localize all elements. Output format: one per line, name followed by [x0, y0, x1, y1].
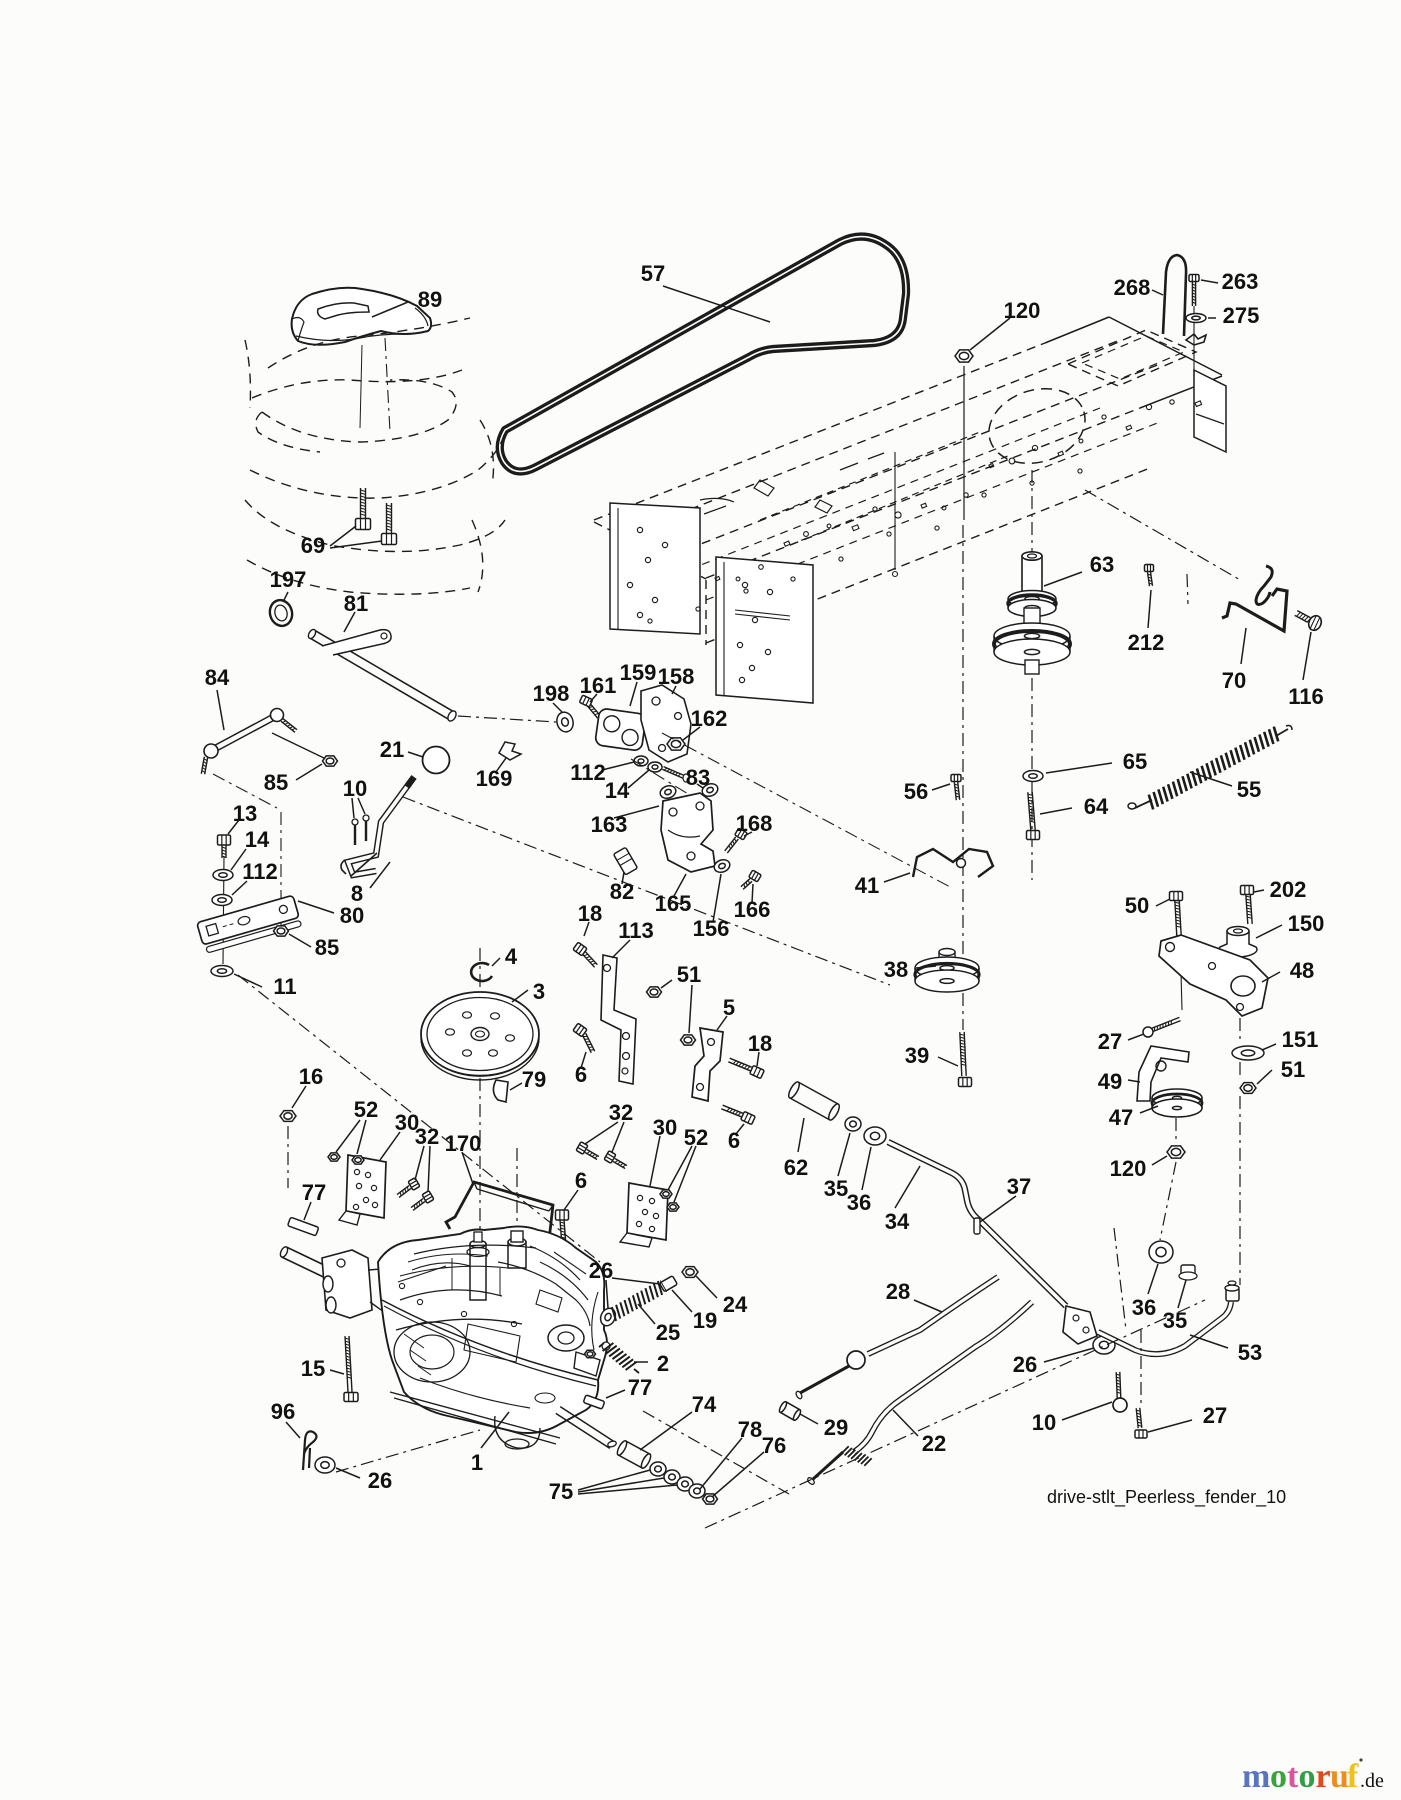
svg-text:96: 96	[271, 1399, 295, 1424]
svg-text:268: 268	[1114, 275, 1151, 300]
svg-text:120: 120	[1004, 298, 1041, 323]
svg-text:26: 26	[589, 1258, 613, 1283]
svg-text:t: t	[1287, 1758, 1299, 1795]
svg-text:169: 169	[476, 766, 513, 791]
svg-text:drive-stlt_Peerless_fender_10: drive-stlt_Peerless_fender_10	[1047, 1487, 1286, 1508]
svg-text:116: 116	[1288, 684, 1324, 709]
svg-text:48: 48	[1290, 958, 1314, 983]
svg-text:161: 161	[580, 673, 617, 698]
svg-text:53: 53	[1238, 1340, 1262, 1365]
svg-text:112: 112	[242, 859, 278, 884]
svg-text:163: 163	[591, 812, 628, 837]
svg-text:r: r	[1316, 1758, 1331, 1795]
svg-text:120: 120	[1110, 1156, 1147, 1181]
svg-text:263: 263	[1222, 269, 1259, 294]
svg-text:5: 5	[723, 995, 735, 1020]
svg-text:11: 11	[273, 974, 296, 999]
svg-text:4: 4	[505, 944, 518, 969]
svg-text:49: 49	[1098, 1069, 1122, 1094]
svg-text:29: 29	[824, 1415, 848, 1440]
svg-text:51: 51	[677, 962, 701, 987]
svg-text:37: 37	[1007, 1174, 1031, 1199]
svg-text:62: 62	[784, 1155, 808, 1180]
svg-text:26: 26	[368, 1468, 392, 1493]
svg-text:3: 3	[533, 979, 545, 1004]
svg-text:158: 158	[658, 664, 695, 689]
svg-text:151: 151	[1282, 1027, 1319, 1052]
svg-text:10: 10	[1032, 1410, 1056, 1435]
svg-text:10: 10	[343, 776, 367, 801]
svg-text:18: 18	[578, 901, 602, 926]
svg-text:25: 25	[656, 1320, 680, 1345]
svg-text:36: 36	[1132, 1295, 1156, 1320]
svg-text:165: 165	[655, 891, 692, 916]
svg-text:30: 30	[653, 1115, 677, 1140]
svg-text:22: 22	[922, 1431, 946, 1456]
svg-text:52: 52	[684, 1125, 708, 1150]
svg-text:35: 35	[1163, 1308, 1187, 1333]
svg-text:64: 64	[1084, 794, 1109, 819]
svg-text:o: o	[1270, 1758, 1287, 1795]
svg-text:47: 47	[1109, 1105, 1133, 1130]
svg-text:21: 21	[380, 737, 404, 762]
svg-text:6: 6	[728, 1128, 740, 1153]
svg-text:168: 168	[736, 811, 773, 836]
svg-text:162: 162	[691, 706, 728, 731]
svg-text:112: 112	[570, 760, 606, 785]
svg-text:69: 69	[301, 533, 325, 558]
svg-text:159: 159	[620, 660, 657, 685]
svg-text:89: 89	[418, 287, 442, 312]
svg-text:52: 52	[354, 1097, 378, 1122]
svg-text:14: 14	[245, 827, 270, 852]
svg-text:50: 50	[1125, 893, 1149, 918]
svg-text:32: 32	[415, 1124, 439, 1149]
svg-text:1: 1	[471, 1450, 483, 1475]
svg-text:19: 19	[693, 1308, 717, 1333]
svg-text:65: 65	[1123, 749, 1147, 774]
svg-text:85: 85	[315, 935, 339, 960]
svg-text:38: 38	[884, 957, 908, 982]
svg-text:78: 78	[738, 1417, 762, 1442]
svg-text:197: 197	[270, 567, 307, 592]
svg-text:6: 6	[575, 1062, 587, 1087]
svg-text:f: f	[1347, 1758, 1359, 1795]
svg-text:74: 74	[692, 1392, 717, 1417]
svg-text:55: 55	[1237, 777, 1261, 802]
svg-text:150: 150	[1288, 911, 1325, 936]
svg-text:202: 202	[1270, 877, 1307, 902]
svg-text:27: 27	[1203, 1403, 1227, 1428]
svg-text:16: 16	[299, 1064, 323, 1089]
svg-text:57: 57	[641, 261, 665, 286]
svg-text:75: 75	[549, 1479, 573, 1504]
svg-text:166: 166	[734, 897, 771, 922]
svg-text:84: 84	[205, 665, 230, 690]
svg-text:170: 170	[445, 1131, 482, 1156]
svg-text:41: 41	[855, 873, 879, 898]
svg-text:80: 80	[340, 903, 364, 928]
svg-text:2: 2	[657, 1351, 669, 1376]
svg-text:27: 27	[1098, 1029, 1122, 1054]
svg-text:77: 77	[302, 1180, 326, 1205]
svg-text:15: 15	[301, 1356, 325, 1381]
svg-text:13: 13	[233, 801, 257, 826]
svg-text:113: 113	[618, 918, 654, 943]
svg-text:24: 24	[723, 1292, 748, 1317]
svg-text:32: 32	[609, 1100, 633, 1125]
svg-text:.de: .de	[1360, 1770, 1384, 1792]
svg-text:81: 81	[344, 591, 368, 616]
svg-text:77: 77	[628, 1375, 652, 1400]
svg-text:m: m	[1242, 1758, 1270, 1795]
svg-text:39: 39	[905, 1043, 929, 1068]
svg-text:14: 14	[605, 778, 630, 803]
svg-text:51: 51	[1281, 1057, 1305, 1082]
svg-text:56: 56	[904, 779, 928, 804]
svg-text:85: 85	[264, 770, 288, 795]
svg-text:26: 26	[1013, 1352, 1037, 1377]
svg-text:198: 198	[533, 681, 570, 706]
svg-text:82: 82	[610, 879, 634, 904]
svg-text:6: 6	[575, 1168, 587, 1193]
svg-text:79: 79	[522, 1067, 546, 1092]
svg-text:70: 70	[1222, 668, 1246, 693]
svg-text:212: 212	[1128, 630, 1165, 655]
svg-text:36: 36	[847, 1190, 871, 1215]
svg-text:o: o	[1299, 1758, 1316, 1795]
svg-text:34: 34	[885, 1209, 910, 1234]
svg-text:275: 275	[1223, 303, 1260, 328]
svg-text:35: 35	[824, 1176, 848, 1201]
svg-text:18: 18	[748, 1031, 772, 1056]
svg-text:63: 63	[1090, 552, 1114, 577]
svg-text:76: 76	[762, 1433, 786, 1458]
svg-text:83: 83	[686, 765, 710, 790]
svg-text:156: 156	[693, 916, 730, 941]
svg-text:28: 28	[886, 1279, 910, 1304]
